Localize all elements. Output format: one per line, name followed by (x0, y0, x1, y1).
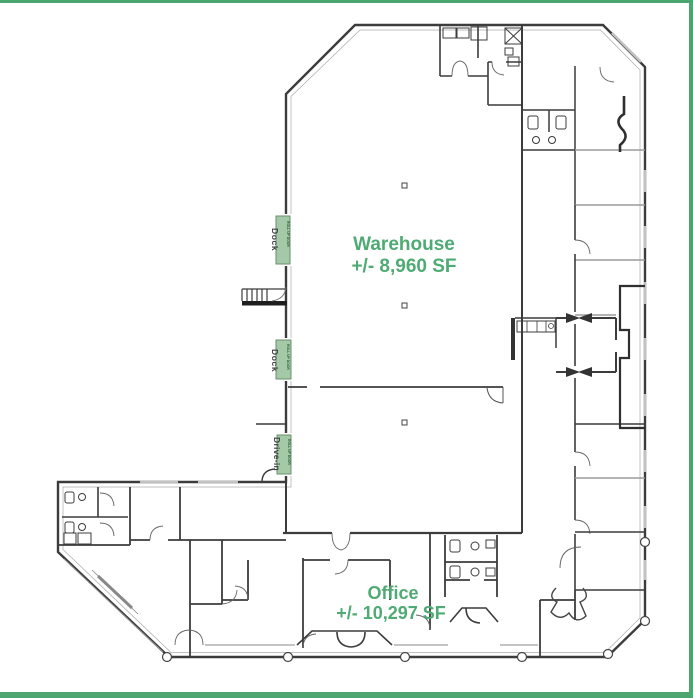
office-title: Office (367, 583, 418, 603)
column-square (402, 303, 407, 308)
dock-1-label: Dock (270, 228, 280, 251)
column-circle (641, 617, 650, 626)
floorplan-svg: ROLL UP DOOR ROLL UP DOOR ROLL UP DOOR W… (0, 0, 693, 698)
column-circle (518, 653, 527, 662)
column-square (402, 420, 407, 425)
frame-top (0, 0, 693, 3)
dock-door-1-tag: ROLL UP DOOR (286, 221, 290, 247)
warehouse-title: Warehouse (353, 234, 455, 255)
stairs (242, 287, 287, 306)
dock-door-2-tag: ROLL UP DOOR (286, 344, 290, 370)
outer-wall (58, 25, 645, 657)
office-area: +/- 10,297 SF (336, 603, 446, 623)
column-circle (401, 653, 410, 662)
stair-bottom-wall (242, 301, 287, 306)
building-shell (58, 25, 645, 657)
warehouse-area: +/- 8,960 SF (351, 256, 456, 277)
dock-2-label: Dock (270, 349, 280, 372)
column-circle (604, 650, 613, 659)
drive-in-label: Drive-in (272, 437, 282, 471)
frame-bottom (0, 692, 693, 698)
column-circle (163, 653, 172, 662)
break-room-thick-wall (511, 318, 515, 360)
column-square (402, 183, 407, 188)
stair-treads (242, 289, 287, 301)
column-circle (641, 538, 650, 547)
frame-right (689, 0, 693, 698)
column-circle (284, 653, 293, 662)
drive-in-door-tag: ROLL UP DOOR (287, 439, 291, 465)
floorplan-screenshot: ROLL UP DOOR ROLL UP DOOR ROLL UP DOOR W… (0, 0, 693, 698)
